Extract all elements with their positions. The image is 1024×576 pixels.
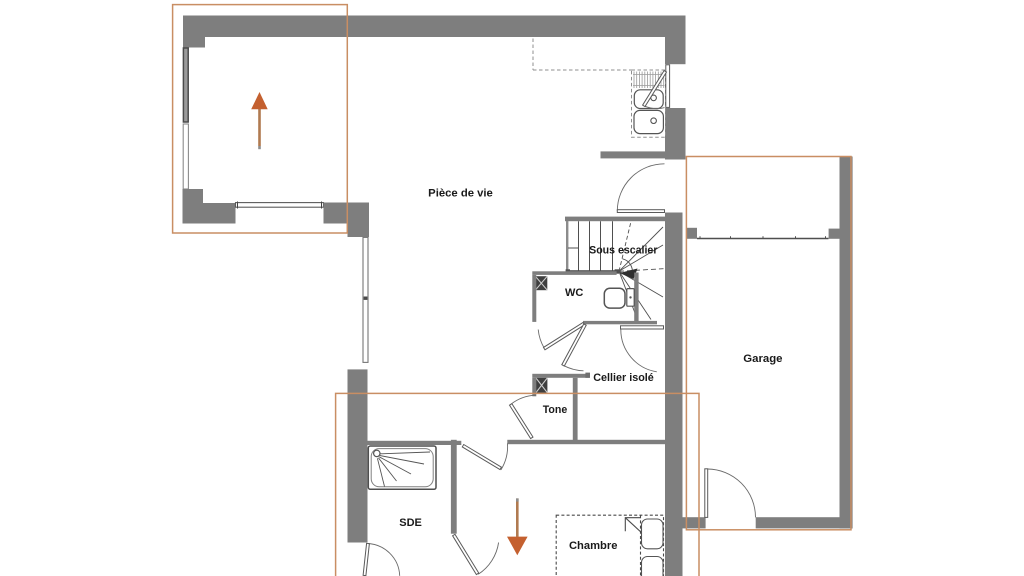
svg-text:Tone: Tone (543, 404, 568, 416)
svg-text:WC: WC (565, 287, 583, 299)
svg-text:Sous escalier: Sous escalier (589, 245, 657, 257)
svg-text:Garage: Garage (743, 353, 782, 365)
svg-text:SDE: SDE (399, 517, 422, 529)
svg-text:Pièce de vie: Pièce de vie (428, 187, 493, 199)
svg-text:Cellier isolé: Cellier isolé (593, 372, 654, 384)
svg-text:Chambre: Chambre (569, 540, 618, 552)
